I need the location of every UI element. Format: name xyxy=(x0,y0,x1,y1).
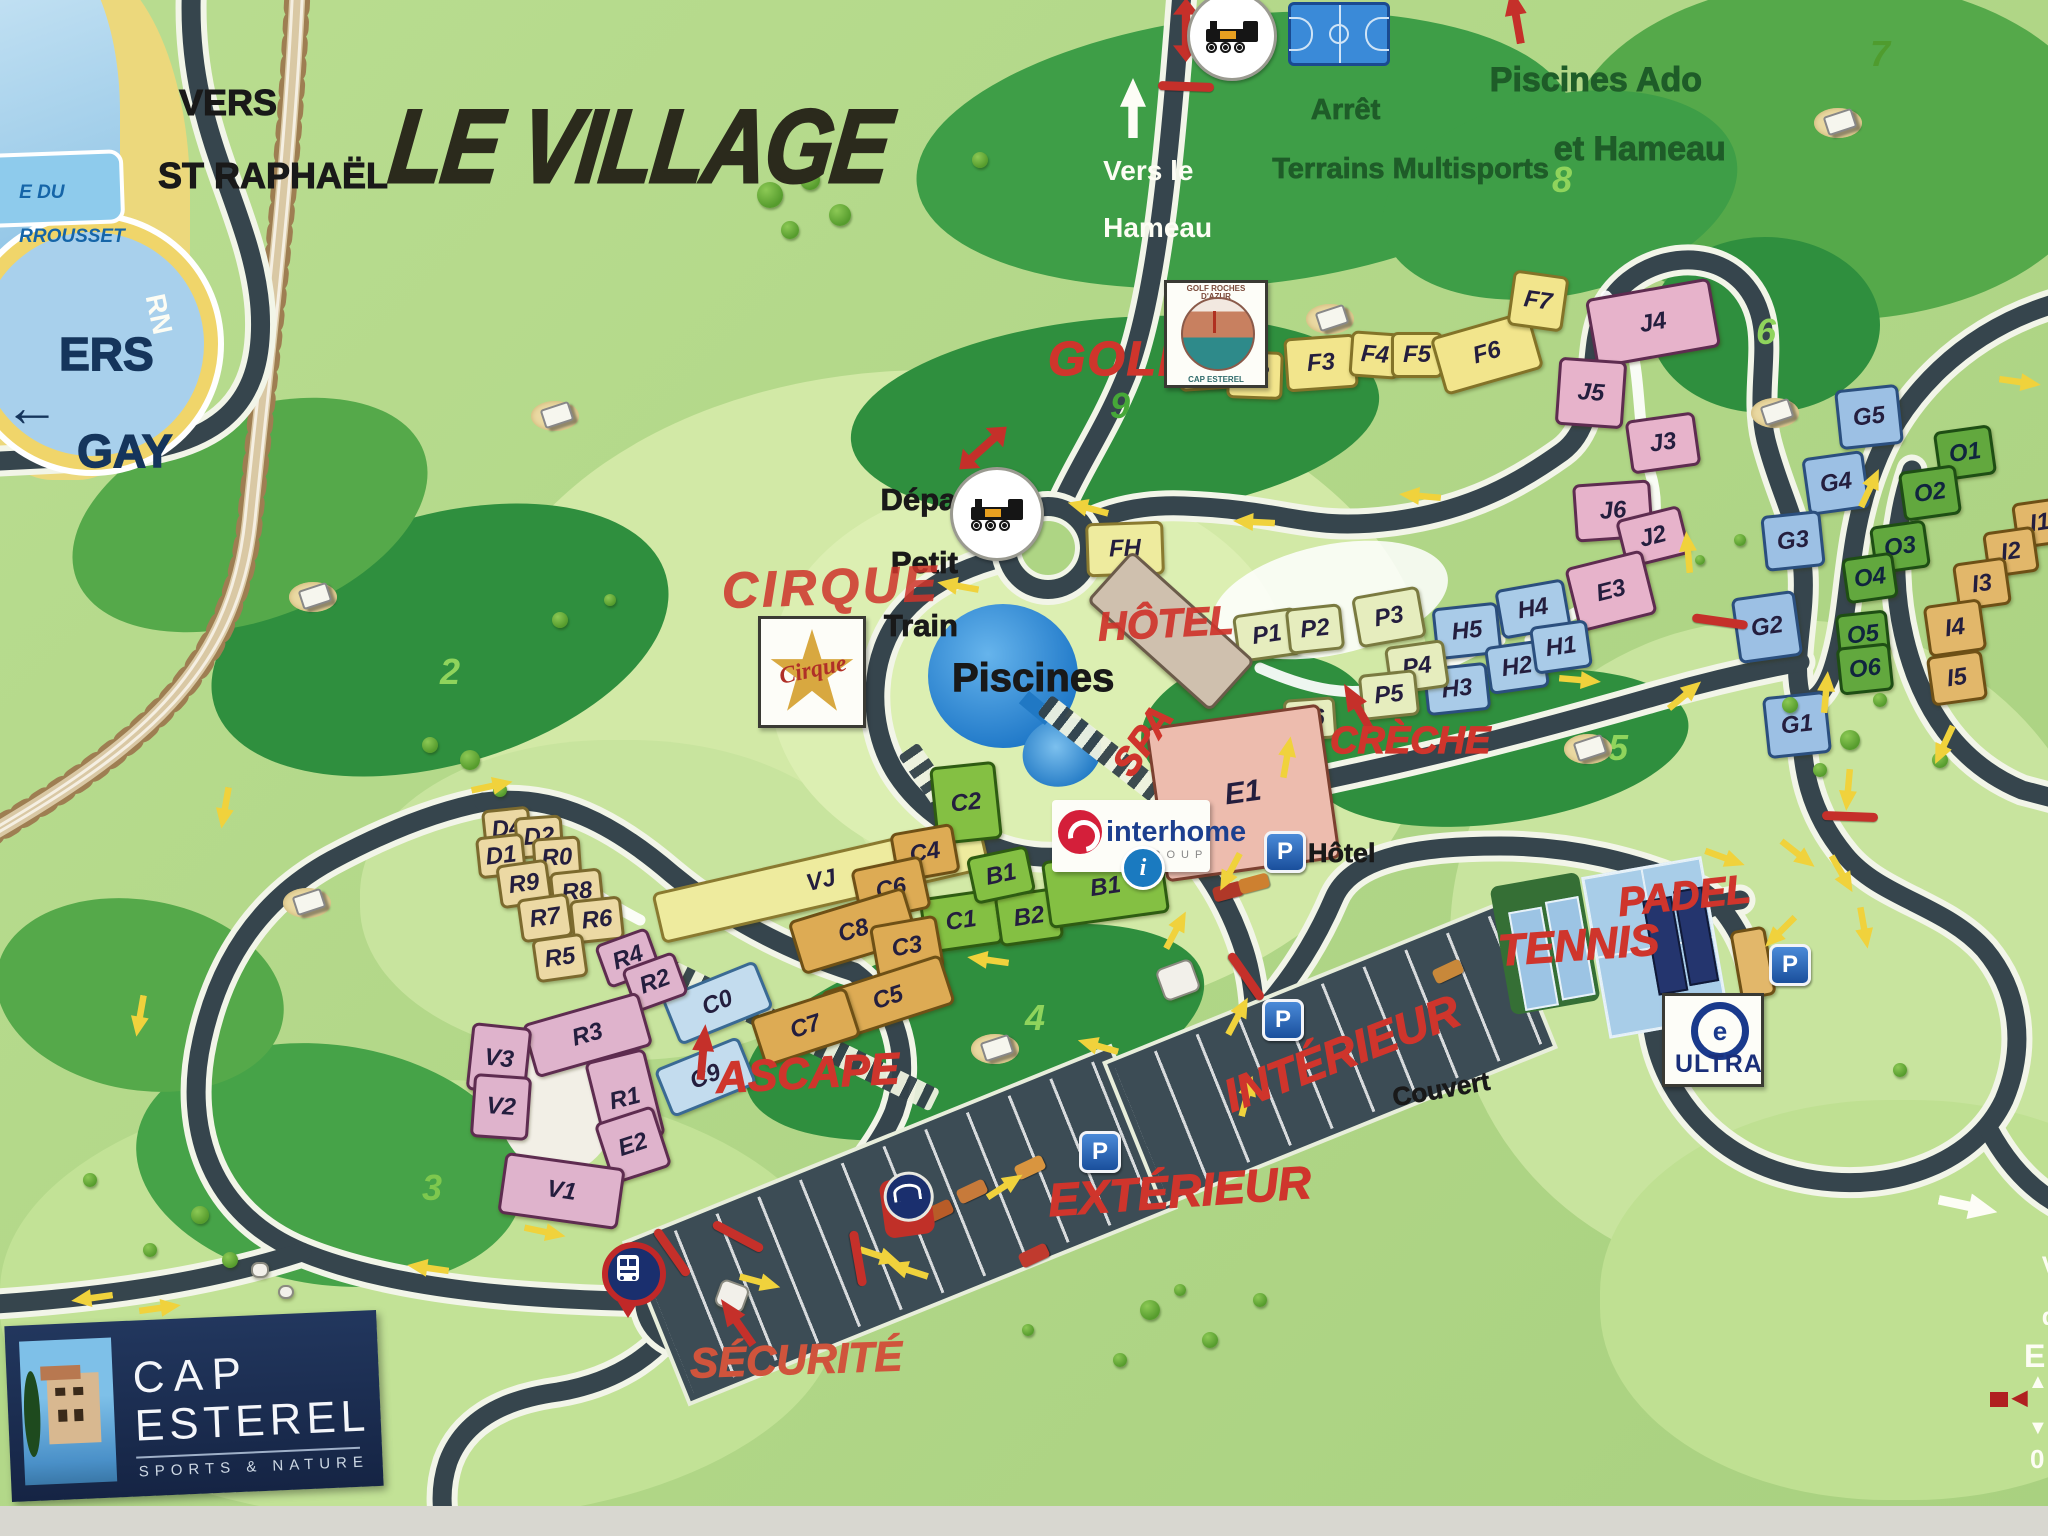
label-piscines-ado: Piscines Ado et Hameau xyxy=(1452,28,1726,201)
golf-logo-text-bot: CAP ESTEREL xyxy=(1171,376,1261,384)
label-piscines: Piscines xyxy=(952,658,1114,699)
building-i4: I4 xyxy=(1923,598,1988,658)
road-barrier xyxy=(1158,81,1214,92)
line: RROUSSET xyxy=(19,226,125,247)
golf-hole-2: 2 xyxy=(440,651,460,693)
bush xyxy=(1893,1063,1907,1077)
cap-esterel-logo: CAP ESTEREL SPORTS & NATURE xyxy=(4,1310,383,1502)
edge-tri-down: ▼ xyxy=(2028,1418,2048,1438)
bush xyxy=(1202,1332,1218,1348)
bush xyxy=(191,1206,209,1224)
building-h1: H1 xyxy=(1529,619,1593,675)
map-title: LE VILLAGE xyxy=(384,88,896,207)
golf-logo-emblem xyxy=(1181,297,1255,371)
bush xyxy=(1840,730,1860,750)
building-j3: J3 xyxy=(1625,411,1702,474)
train-depart-icon xyxy=(950,467,1044,561)
edge-tri-up: ▲ xyxy=(2028,1372,2048,1392)
line: ST RAPHAËL xyxy=(158,155,388,196)
building-f7: F7 xyxy=(1506,269,1569,332)
label-tennis: TENNIS xyxy=(1497,918,1661,974)
bush xyxy=(604,594,616,606)
info-icon: i xyxy=(1121,846,1165,890)
multisport-court-icon xyxy=(1288,2,1390,66)
line: Hameau xyxy=(1103,212,1212,243)
bush xyxy=(422,737,438,753)
line: et Hameau xyxy=(1490,130,1726,168)
bush xyxy=(1113,1353,1127,1367)
bush xyxy=(1734,534,1746,546)
line: Piscines Ado xyxy=(1490,61,1702,99)
bush xyxy=(1253,1293,1267,1307)
bush xyxy=(781,221,799,239)
parking-sign-icon: P xyxy=(1264,831,1306,873)
ultra-text: ULTRA xyxy=(1675,1052,1763,1078)
photo-table-edge xyxy=(0,1506,2048,1536)
bush xyxy=(829,204,851,226)
road-barrier xyxy=(1822,811,1878,822)
parking-gate-icon xyxy=(878,1169,937,1243)
building-j5: J5 xyxy=(1555,357,1628,430)
building-p2: P2 xyxy=(1285,603,1346,655)
line: VERS xyxy=(179,82,277,123)
parking-sign-icon: P xyxy=(1079,1131,1121,1173)
building-f3: F3 xyxy=(1283,334,1359,393)
label-vers-hameau: Vers le Hameau xyxy=(1072,128,1192,271)
building-g5: G5 xyxy=(1834,384,1904,450)
golf-hole-4: 4 xyxy=(1025,997,1045,1039)
edge-red-mark xyxy=(1990,1392,2008,1407)
edge-text-vers: Ve dé xyxy=(2014,1228,2048,1356)
edge-text-e: E xyxy=(2024,1340,2045,1373)
info-letter: i xyxy=(1140,855,1147,882)
bush xyxy=(143,1243,157,1257)
building-o4: O4 xyxy=(1841,552,1899,605)
label-plage: E DU RROUSSET xyxy=(0,160,125,270)
bush xyxy=(1873,693,1887,707)
building xyxy=(251,1262,269,1278)
cap-esterel-line1: CAP xyxy=(132,1352,251,1402)
line: dé xyxy=(2042,1303,2048,1331)
golf-hole-3: 3 xyxy=(422,1167,442,1209)
golf-hole-6: 6 xyxy=(1756,311,1776,353)
bush xyxy=(972,152,988,168)
line: Arrêt xyxy=(1311,94,1380,126)
line: Vers le xyxy=(1103,155,1193,186)
bush xyxy=(552,612,568,628)
bush xyxy=(1140,1300,1160,1320)
golf-hole-7: 7 xyxy=(1870,33,1890,75)
label-creche: CRÈCHE xyxy=(1330,722,1490,761)
label-p-hotel: Hôtel xyxy=(1308,840,1376,868)
label-cirque: CIRQUE xyxy=(721,558,941,617)
road-network xyxy=(0,0,2048,1536)
line: ERS xyxy=(59,328,154,380)
vers-agay-arrow-icon: ← xyxy=(4,378,60,435)
bus-stop-pin xyxy=(600,1242,656,1318)
label-ascape: ASCAPE xyxy=(715,1047,900,1101)
interhome-text: interhome xyxy=(1106,818,1246,848)
train-icon xyxy=(1204,19,1260,53)
line: Ve xyxy=(2042,1252,2048,1280)
building-o6: O6 xyxy=(1836,642,1895,695)
parking-sign-icon: P xyxy=(1769,944,1811,986)
label-hotel: HÔTEL xyxy=(1097,600,1234,648)
line: E DU xyxy=(19,182,64,203)
ultra-e: e xyxy=(1713,1016,1727,1047)
golf-hole-9: 9 xyxy=(1110,385,1130,427)
label-vers-st-raphael: VERS ST RAPHAËL xyxy=(118,48,298,232)
bush xyxy=(1022,1324,1034,1336)
line: Train xyxy=(884,608,958,643)
bush xyxy=(1782,697,1798,713)
bus-icon xyxy=(617,1255,639,1281)
cap-esterel-photo xyxy=(19,1338,117,1486)
building-i5: I5 xyxy=(1926,649,1988,706)
building-o2: O2 xyxy=(1898,464,1962,522)
cap-esterel-line2: ESTEREL xyxy=(134,1394,371,1449)
cirque-logo: Cirque xyxy=(758,616,866,728)
train-icon xyxy=(969,497,1025,531)
bush xyxy=(83,1173,97,1187)
label-arret-multisports: Arrêt Terrains Multisports xyxy=(1240,66,1420,214)
bush xyxy=(1695,555,1705,565)
edge-text-zero: 0 xyxy=(2030,1446,2044,1473)
building xyxy=(278,1285,294,1299)
resort-map: F1F2F3F4F5F6F7FHVJJ4J5J3J6J2E3H5H4H3H2H1… xyxy=(0,0,2048,1536)
parking-sign-icon: P xyxy=(1262,999,1304,1041)
building-g3: G3 xyxy=(1760,510,1826,572)
building-r5: R5 xyxy=(531,933,589,984)
ultra-logo: e ULTRA xyxy=(1662,993,1764,1087)
bush xyxy=(222,1252,238,1268)
line: GAY xyxy=(59,425,172,477)
bush xyxy=(1813,763,1827,777)
bush xyxy=(1174,1284,1186,1296)
bush xyxy=(460,750,480,770)
golf-flag xyxy=(1213,311,1216,333)
label-securite: SÉCURITÉ xyxy=(689,1332,903,1387)
building-p5: P5 xyxy=(1358,669,1420,721)
golf-club-logo: GOLF ROCHES D'AZUR CAP ESTEREL xyxy=(1164,280,1268,388)
edge-red-left: ◀ xyxy=(2012,1388,2027,1408)
cap-esterel-sub: SPORTS & NATURE xyxy=(138,1454,369,1479)
building-v2: V2 xyxy=(470,1073,532,1141)
